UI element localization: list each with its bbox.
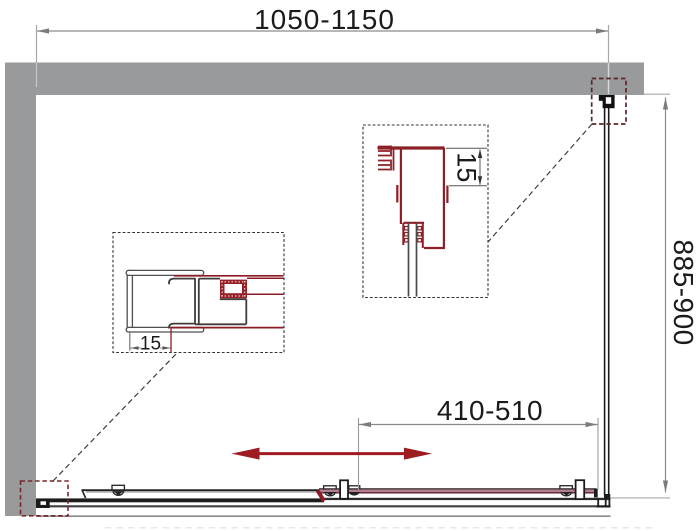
- svg-text:885-900: 885-900: [668, 240, 699, 346]
- svg-text:410-510: 410-510: [437, 395, 543, 426]
- svg-text:15: 15: [140, 334, 161, 355]
- svg-text:1050-1150: 1050-1150: [254, 4, 395, 35]
- svg-text:15: 15: [452, 152, 482, 182]
